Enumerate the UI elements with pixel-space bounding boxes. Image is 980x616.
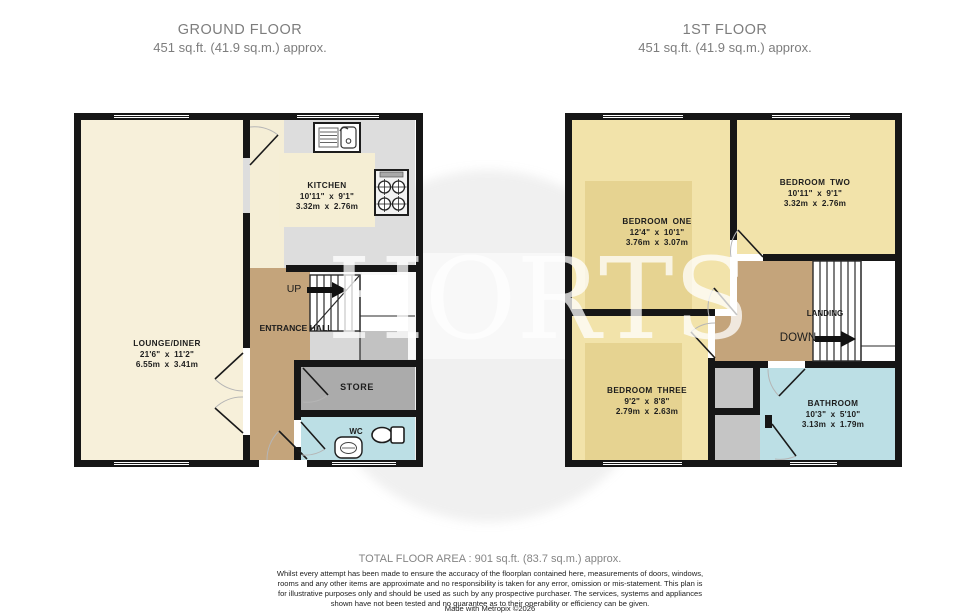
ground-floor-area: 451 sq.ft. (41.9 sq.m.) approx.	[90, 40, 390, 55]
bathroom-label: BATHROOM 10'3" x 5'10" 3.13m x 1.79m	[773, 399, 893, 431]
bedroom-two-label: BEDROOM TWO 10'11" x 9'1" 3.32m x 2.76m	[755, 178, 875, 210]
lounge-diner-label: LOUNGE/DINER 21'6" x 11'2" 6.55m x 3.41m	[107, 339, 227, 371]
ground-floor-overlay	[74, 113, 423, 467]
first-floor-plan: BEDROOM ONE 12'4" x 10'1" 3.76m x 3.07m …	[565, 113, 902, 467]
down-arrow	[815, 331, 856, 347]
entrance-hall-label: ENTRANCE HALL	[236, 323, 356, 333]
bedroom-one-label: BEDROOM ONE 12'4" x 10'1" 3.76m x 3.07m	[597, 217, 717, 249]
door-arcs	[215, 127, 328, 460]
ground-floor-plan: KITCHEN 10'11" x 9'1" 3.32m x 2.76m LOUN…	[74, 113, 423, 467]
ground-floor-title: GROUND FLOOR	[90, 22, 390, 38]
store-label: STORE	[307, 382, 407, 392]
down-label: DOWN	[777, 332, 819, 344]
floorplan-page: GROUND FLOOR 451 sq.ft. (41.9 sq.m.) app…	[0, 0, 980, 616]
disclaimer-text: Whilst every attempt has been made to en…	[275, 569, 705, 608]
wc-label: WC	[336, 427, 376, 436]
first-floor-area: 451 sq.ft. (41.9 sq.m.) approx.	[575, 40, 875, 55]
landing-label: LANDING	[785, 309, 865, 318]
kitchen-label: KITCHEN 10'11" x 9'1" 3.32m x 2.76m	[267, 181, 387, 213]
first-floor-title: 1ST FLOOR	[575, 22, 875, 38]
up-label: UP	[282, 283, 306, 295]
credit-text: Made with Metropix ©2026	[0, 604, 980, 613]
ground-floor-header: GROUND FLOOR 451 sq.ft. (41.9 sq.m.) app…	[90, 22, 390, 55]
sink-icon	[314, 123, 360, 152]
total-floor-area: TOTAL FLOOR AREA : 901 sq.ft. (83.7 sq.m…	[0, 553, 980, 565]
basin-icon	[335, 437, 362, 458]
first-floor-header: 1ST FLOOR 451 sq.ft. (41.9 sq.m.) approx…	[575, 22, 875, 55]
bedroom-three-label: BEDROOM THREE 9'2" x 8'8" 2.79m x 2.63m	[587, 386, 707, 418]
toilet-icon	[372, 427, 404, 443]
